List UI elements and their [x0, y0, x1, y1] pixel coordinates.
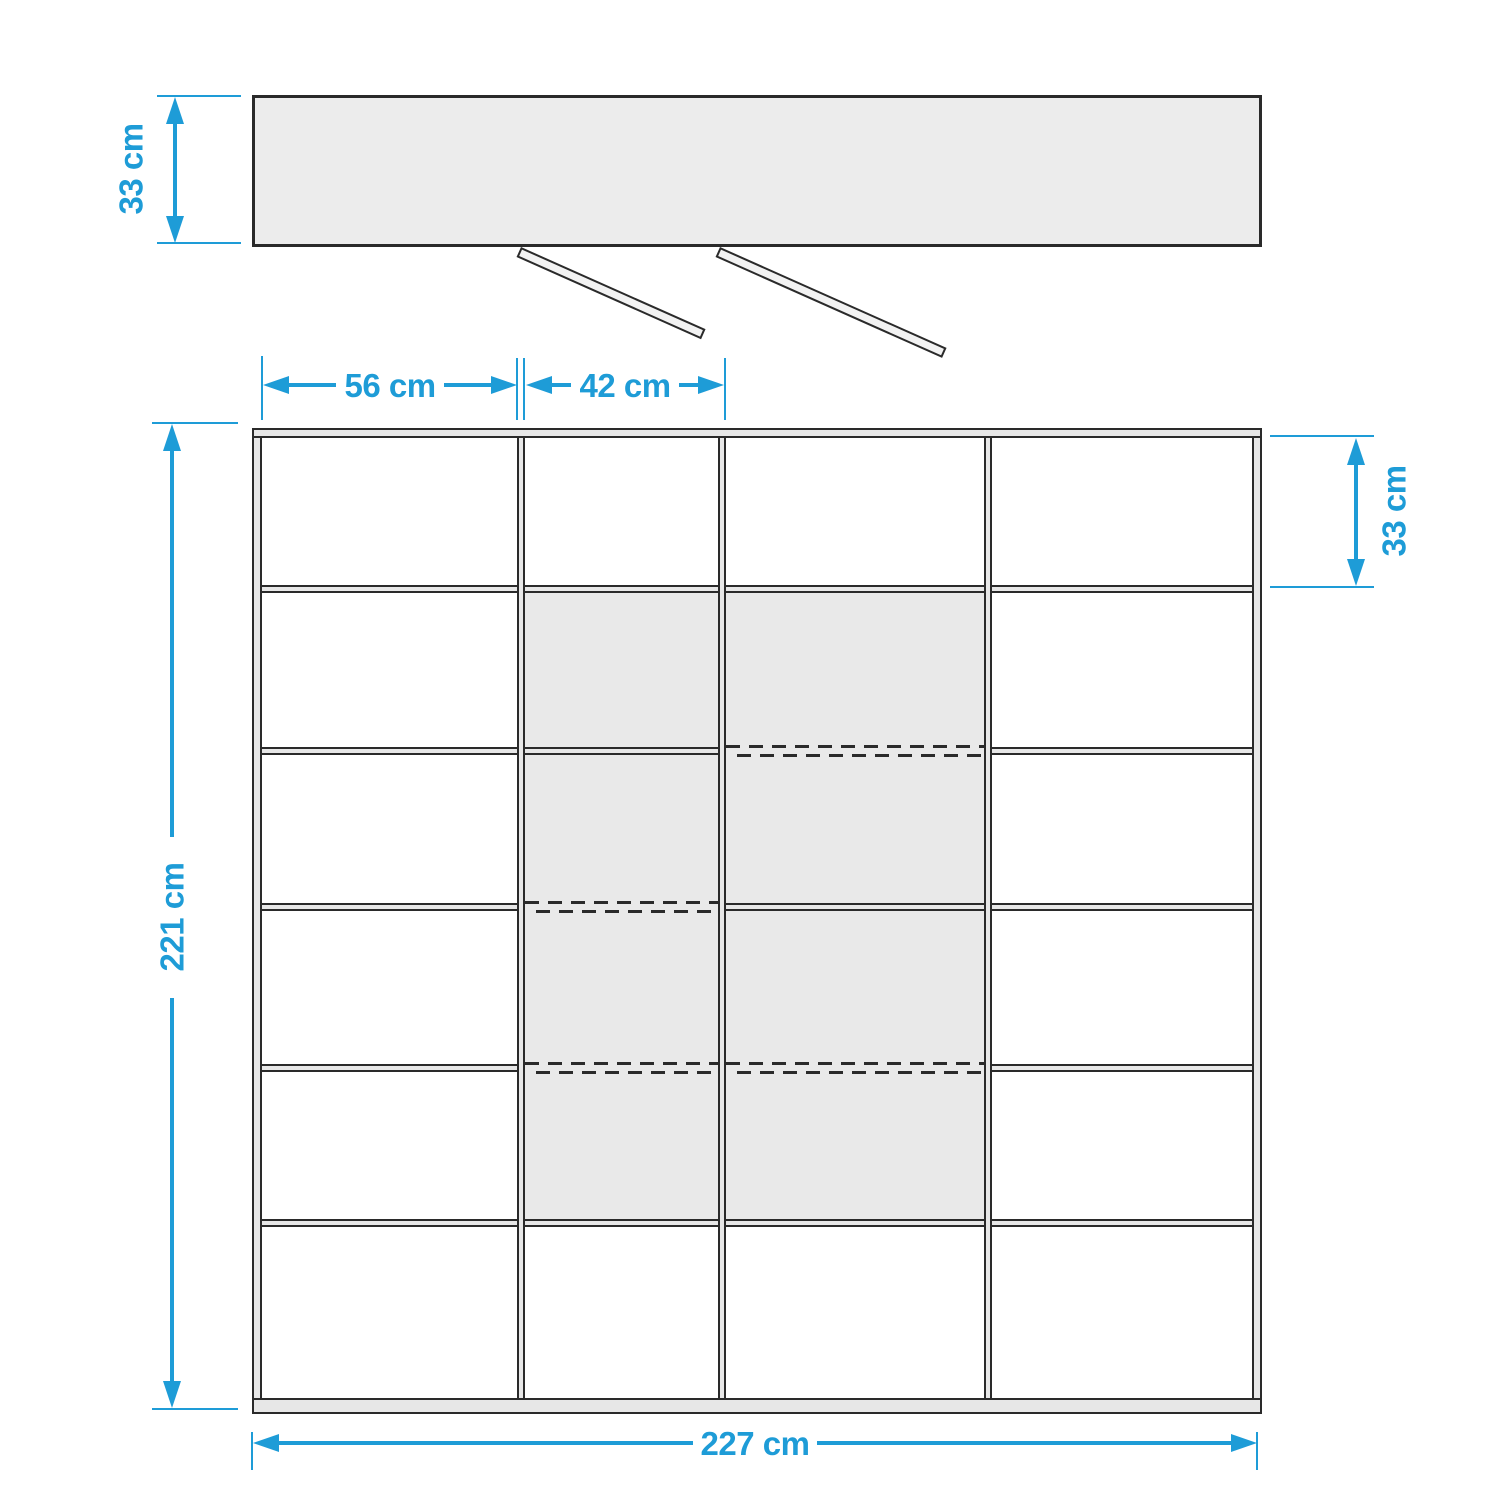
- extension-line: [1270, 435, 1374, 437]
- dimension-line: [173, 121, 177, 219]
- shelf-dashed: [525, 1062, 718, 1074]
- top-view-carcass: [252, 95, 1262, 247]
- shelf-solid: [992, 585, 1252, 593]
- furniture-dimension-diagram: 33 cm 56 cm 42 cm 33: [0, 0, 1500, 1500]
- dimension-line: [279, 1441, 693, 1445]
- arrowhead-down-icon: [1347, 559, 1365, 586]
- right-side-wall: [1252, 436, 1262, 1400]
- dimension-line: [444, 383, 491, 387]
- arrowhead-right-icon: [491, 376, 517, 394]
- shelf-solid: [262, 903, 517, 911]
- shelf-dashed: [726, 1062, 984, 1074]
- column2-width-label: 42 cm: [571, 369, 678, 402]
- dimension-arrow: 227 cm: [253, 1423, 1257, 1463]
- shelf-solid: [262, 747, 517, 755]
- arrowhead-left-icon: [263, 376, 289, 394]
- arrowhead-up-icon: [166, 97, 184, 124]
- dimension-line: [289, 383, 336, 387]
- extension-line: [152, 1408, 238, 1410]
- dimension-line: [679, 383, 698, 387]
- top-depth-label: 33 cm: [115, 123, 148, 214]
- open-door-slat-1: [517, 247, 706, 339]
- shelf-solid: [992, 1219, 1252, 1227]
- dimension-line: [170, 998, 174, 1384]
- shelf-solid: [992, 747, 1252, 755]
- dimension-arrow: 42 cm: [526, 365, 724, 405]
- top-row-height-label: 33 cm: [1378, 465, 1411, 556]
- extension-line: [523, 358, 525, 420]
- top-panel: [252, 428, 1262, 438]
- column1-width-label: 56 cm: [336, 369, 443, 402]
- shelf-solid: [262, 1064, 517, 1072]
- arrowhead-up-icon: [163, 424, 181, 451]
- arrowhead-left-icon: [526, 376, 552, 394]
- shelf-solid: [992, 903, 1252, 911]
- shelf-solid: [726, 1219, 984, 1227]
- dimension-line: [1354, 462, 1358, 562]
- shelf-solid: [262, 1219, 517, 1227]
- total-height-label: 221 cm: [156, 863, 189, 972]
- total-width-label: 227 cm: [693, 1427, 818, 1460]
- shelf-solid: [726, 903, 984, 911]
- dimension-line: [552, 383, 571, 387]
- shelf-solid: [525, 747, 718, 755]
- dimension-line: [817, 1441, 1231, 1445]
- base-panel: [252, 1398, 1262, 1414]
- open-door-slat-2: [716, 247, 947, 358]
- vertical-divider: [517, 436, 525, 1400]
- extension-line: [1270, 586, 1374, 588]
- shelf-solid: [992, 1064, 1252, 1072]
- shelf-dashed: [525, 901, 718, 913]
- shelf-solid: [262, 585, 517, 593]
- arrowhead-up-icon: [1347, 438, 1365, 465]
- extension-line: [724, 358, 726, 420]
- shelf-solid: [525, 585, 718, 593]
- arrowhead-left-icon: [253, 1434, 279, 1452]
- shelf-dashed: [726, 745, 984, 757]
- vertical-divider: [984, 436, 992, 1400]
- shelf-solid: [525, 1219, 718, 1227]
- shelf-solid: [726, 585, 984, 593]
- arrowhead-right-icon: [1231, 1434, 1257, 1452]
- dimension-arrow: 56 cm: [263, 365, 517, 405]
- vertical-divider: [718, 436, 726, 1400]
- arrowhead-down-icon: [163, 1381, 181, 1408]
- arrowhead-down-icon: [166, 216, 184, 243]
- arrowhead-right-icon: [698, 376, 724, 394]
- dimension-line: [170, 449, 174, 837]
- left-side-wall: [252, 436, 262, 1400]
